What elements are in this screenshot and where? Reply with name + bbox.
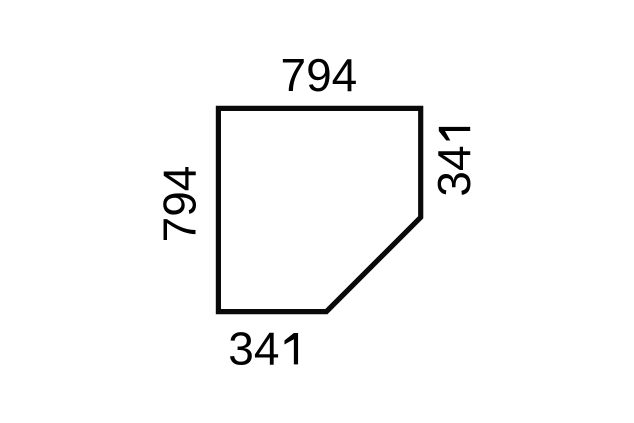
svg-text:794: 794	[281, 49, 358, 101]
svg-text:34: 34	[428, 145, 480, 196]
svg-text:794: 794	[153, 166, 205, 243]
svg-text:34: 34	[228, 322, 279, 374]
